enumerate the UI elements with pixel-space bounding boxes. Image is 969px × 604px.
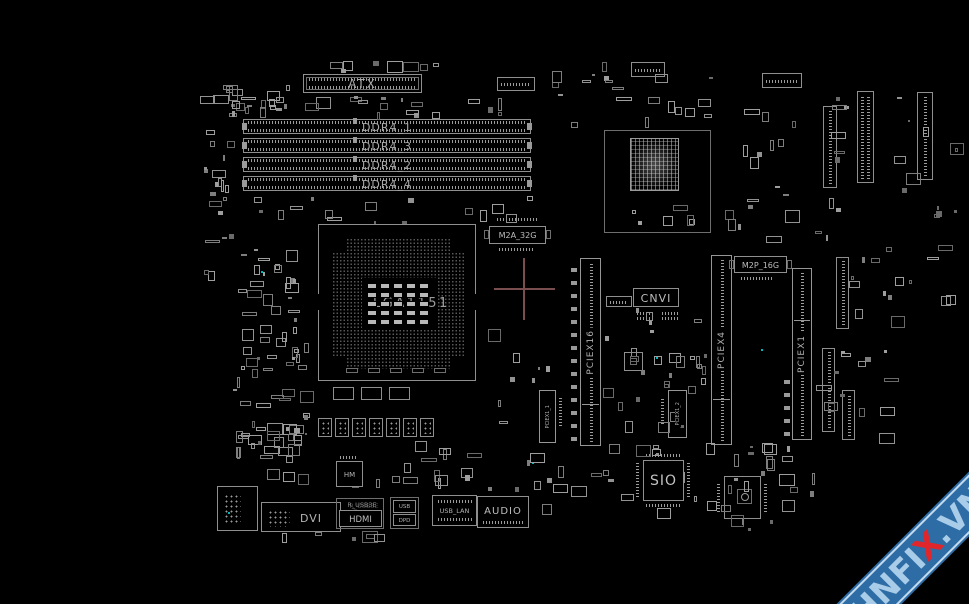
component-outline — [702, 366, 706, 375]
component-outline — [270, 105, 277, 109]
component-outline[interactable] — [369, 418, 383, 437]
component-outline — [204, 169, 208, 173]
component-outline — [387, 61, 403, 73]
component-outline — [725, 210, 734, 220]
component-outline — [232, 111, 235, 117]
pin-col — [829, 110, 832, 184]
dp-connector[interactable]: DPD — [393, 514, 416, 526]
testpoint[interactable] — [761, 349, 763, 351]
pin-row — [501, 83, 531, 86]
component-outline — [492, 204, 504, 213]
component-outline — [582, 80, 591, 83]
component-outline — [288, 434, 294, 441]
pch-chip[interactable] — [630, 138, 679, 191]
hdmi-connector[interactable]: HDMI — [339, 510, 382, 527]
component-outline — [283, 424, 297, 435]
component-outline — [653, 445, 659, 450]
pad-row — [499, 248, 535, 251]
pad-col — [559, 398, 562, 426]
component-outline — [654, 356, 663, 365]
pad — [390, 368, 402, 373]
component-outline — [787, 446, 790, 452]
component-outline — [783, 194, 789, 196]
component-outline — [226, 86, 229, 91]
component-outline — [283, 472, 296, 483]
component-outline[interactable] — [318, 418, 332, 437]
pciex1-label: PCIEX1 — [797, 333, 807, 375]
component-outline — [439, 448, 451, 455]
component-outline — [381, 97, 387, 99]
pad — [434, 368, 446, 373]
component-outline — [365, 202, 377, 212]
component-outline — [770, 140, 775, 151]
component-outline — [237, 447, 241, 459]
component-outline — [605, 80, 613, 83]
component-outline — [223, 197, 227, 201]
component-outline — [223, 155, 225, 161]
component-outline — [241, 97, 256, 100]
dvi-label: DVI — [282, 512, 340, 525]
pad-row — [741, 277, 773, 280]
component-outline — [250, 281, 264, 287]
component-outline — [764, 444, 776, 455]
component-outline — [766, 236, 782, 243]
component-outline — [236, 447, 241, 459]
component-outline — [552, 82, 559, 88]
component-outline — [707, 501, 718, 511]
component-outline — [498, 400, 501, 407]
pin-header[interactable] — [631, 62, 665, 77]
component-outline — [938, 245, 952, 251]
component-outline — [836, 208, 841, 212]
pin-grid-corner-cut — [332, 238, 345, 251]
component-outline — [238, 289, 248, 293]
cpu-center-pads — [367, 283, 429, 325]
testpoint[interactable] — [656, 357, 658, 359]
component-outline — [276, 97, 285, 103]
component-outline — [358, 100, 368, 105]
component-outline — [350, 97, 361, 102]
component-outline — [782, 456, 793, 462]
component-outline — [298, 365, 307, 370]
dimm-label: DDR4_4 — [244, 177, 530, 192]
qfn-chip[interactable] — [724, 476, 761, 519]
pin-row — [610, 301, 628, 304]
component-outline — [291, 278, 295, 284]
component-outline — [286, 250, 299, 262]
component-outline — [286, 427, 289, 431]
component-outline — [704, 114, 711, 119]
component-outline — [421, 458, 437, 463]
dimm-slot-ddr4-4[interactable]: DDR4_4 — [243, 176, 531, 191]
testpoint[interactable] — [228, 512, 230, 514]
pciex16-slot[interactable]: PCIEX16 — [580, 258, 601, 446]
usb-connector[interactable]: USB — [393, 500, 416, 513]
component-outline — [206, 130, 214, 135]
pin-header[interactable] — [497, 77, 535, 91]
component-outline — [292, 347, 298, 357]
component-outline — [226, 86, 233, 93]
component-outline — [895, 277, 904, 286]
component-outline — [218, 211, 223, 215]
component-outline — [571, 122, 577, 127]
component-outline — [790, 487, 798, 493]
component-outline — [669, 353, 681, 363]
pin-col — [861, 95, 864, 179]
component-outline[interactable] — [333, 387, 354, 400]
boardview-canvas[interactable]: ATX DDR4_1 DDR4_3 DDR4_2 DDR4_4 — [0, 0, 969, 604]
component-outline — [782, 500, 795, 512]
pad-cluster — [662, 317, 680, 320]
key-notch — [794, 320, 810, 321]
pin-header-vertical[interactable] — [823, 106, 837, 188]
cnvi-connector[interactable]: CNVI — [633, 288, 679, 307]
component-outline — [657, 508, 672, 519]
component-outline — [218, 178, 222, 187]
component-outline — [669, 373, 672, 378]
pciex1-slot[interactable]: PCIEX1 — [792, 268, 812, 440]
component-outline — [862, 257, 865, 263]
component-outline — [697, 364, 702, 369]
component-outline — [902, 188, 906, 193]
component-outline — [414, 113, 420, 118]
dimm-slot-ddr4-3[interactable]: DDR4_3 — [243, 138, 531, 153]
component-outline[interactable] — [335, 418, 349, 437]
component-outline — [208, 271, 215, 281]
dimm-label: DDR4_1 — [244, 120, 530, 135]
component-outline[interactable] — [420, 418, 434, 437]
component-outline — [403, 62, 419, 71]
component-outline — [685, 108, 695, 116]
component-outline — [488, 329, 501, 342]
pciex1-2-label: PCIEX1_2 — [675, 400, 681, 427]
audio-connector[interactable]: AUDIO — [477, 496, 529, 528]
component-outline — [750, 157, 760, 169]
component-outline — [254, 265, 261, 274]
component-outline — [762, 112, 769, 122]
component-outline — [955, 148, 958, 152]
component-outline — [362, 531, 377, 543]
dvi-connector[interactable]: DVI — [261, 502, 341, 532]
component-outline — [649, 320, 652, 325]
component-outline — [592, 74, 595, 76]
m2p-label: M2P_16G — [735, 261, 786, 270]
component-outline — [558, 94, 563, 96]
pin-header-vertical[interactable] — [842, 390, 855, 440]
component-outline — [293, 279, 296, 283]
atx-connector[interactable]: ATX — [303, 74, 422, 93]
component-outline — [343, 61, 353, 70]
component-outline — [294, 318, 298, 321]
pin-col — [924, 96, 927, 176]
component-outline — [256, 403, 271, 407]
component-outline — [274, 437, 285, 449]
watermark-text: HNFIX.VN — [844, 479, 969, 604]
component-outline — [616, 97, 632, 101]
component-outline — [664, 384, 670, 388]
component-outline — [406, 110, 419, 115]
component-outline — [269, 99, 275, 107]
component-outline — [311, 197, 314, 201]
component-outline — [286, 362, 294, 366]
hm-chip[interactable]: HM — [336, 461, 363, 487]
component-outline — [812, 473, 816, 485]
component-outline — [884, 350, 887, 353]
component-outline — [305, 433, 307, 435]
socket-side-notch — [471, 294, 476, 310]
component-outline — [743, 145, 748, 156]
pin-header-vertical[interactable] — [836, 257, 849, 329]
component-outline — [552, 71, 562, 82]
component-outline — [258, 258, 270, 262]
component-outline — [288, 444, 300, 456]
component-outline — [891, 316, 905, 328]
component-outline — [636, 397, 640, 402]
component-outline — [744, 109, 760, 115]
component-outline — [778, 139, 784, 146]
component-outline — [527, 460, 530, 466]
component-outline — [225, 185, 228, 193]
component-outline — [558, 466, 565, 477]
component-outline — [465, 208, 472, 216]
m2a-connector[interactable]: M2A_32G — [489, 226, 546, 244]
component-outline[interactable] — [352, 418, 366, 437]
component-outline — [762, 443, 774, 453]
component-outline — [275, 264, 280, 270]
m2a-tab — [546, 230, 551, 239]
component-outline — [510, 377, 516, 382]
component-outline — [844, 106, 849, 109]
component-outline — [954, 210, 957, 213]
component-outline — [294, 349, 300, 353]
component-outline — [728, 219, 736, 232]
crosshair-cursor-v — [523, 258, 525, 320]
qfn-marking — [741, 493, 749, 501]
component-outline — [284, 104, 287, 109]
component-outline — [260, 325, 272, 334]
component-outline — [757, 152, 763, 157]
component-outline — [237, 377, 240, 388]
component-outline — [279, 398, 291, 402]
pciex4-slot[interactable]: PCIEX4 — [711, 255, 732, 445]
cpu-socket[interactable]: LGA1151 — [318, 224, 476, 381]
component-outline — [461, 468, 473, 479]
component-outline — [542, 504, 552, 515]
component-outline — [286, 85, 290, 91]
component-outline — [650, 330, 654, 333]
component-outline[interactable] — [386, 418, 400, 437]
component-outline — [603, 470, 608, 476]
pciex1-1-header[interactable]: PCIEX1_1 — [539, 390, 556, 443]
socket-side-notch — [318, 294, 323, 310]
component-outline — [286, 277, 292, 289]
component-outline — [292, 357, 295, 360]
component-outline — [775, 186, 780, 188]
component-outline — [408, 198, 414, 203]
component-outline — [271, 306, 281, 315]
component-outline — [696, 356, 700, 368]
component-outline — [373, 61, 378, 66]
component-outline — [883, 291, 886, 296]
component-outline — [886, 247, 892, 252]
pin-field — [224, 494, 241, 524]
pin-header-vertical[interactable] — [917, 92, 933, 180]
cnvi-label: CNVI — [634, 292, 678, 305]
usb-lan-connector[interactable]: USB_LAN — [432, 495, 477, 526]
pin-grid-corner-cut — [332, 356, 345, 369]
component-outline — [937, 206, 939, 211]
component-outline — [770, 520, 773, 524]
component-outline — [748, 528, 751, 530]
pin-header-vertical[interactable] — [857, 91, 874, 183]
component-outline — [602, 62, 607, 71]
component-outline — [871, 258, 880, 263]
component-outline — [489, 108, 493, 113]
component-outline[interactable] — [403, 418, 417, 437]
component-outline — [888, 295, 892, 300]
atx-label: ATX — [304, 77, 421, 91]
component-outline — [546, 366, 550, 372]
component-outline[interactable] — [606, 296, 632, 307]
component-outline — [766, 456, 772, 469]
key-notch — [713, 399, 730, 400]
component-outline — [676, 356, 685, 367]
component-outline[interactable] — [361, 387, 382, 400]
component-outline — [241, 254, 246, 256]
component-outline — [591, 473, 602, 477]
component-outline — [232, 89, 243, 96]
testpoint[interactable] — [532, 462, 534, 464]
qfn-chip[interactable] — [624, 352, 643, 371]
pin-row — [438, 500, 473, 503]
m2p-connector[interactable]: M2P_16G — [734, 256, 787, 273]
r-usb3e-label: R_USB3E — [340, 501, 384, 509]
pciex1-2-header[interactable]: PCIEX1_2 — [668, 390, 687, 438]
component-outline — [327, 217, 341, 221]
component-outline — [785, 210, 800, 223]
component-outline — [264, 446, 279, 454]
pin-header-vertical[interactable] — [822, 348, 835, 432]
dpd-label: DPD — [394, 518, 415, 524]
component-outline — [403, 477, 418, 485]
component-outline — [694, 319, 702, 323]
component-outline — [267, 431, 280, 441]
component-outline — [609, 444, 620, 454]
component-outline — [432, 112, 440, 119]
component-outline — [467, 453, 482, 458]
testpoint[interactable] — [261, 271, 263, 273]
sio-chip[interactable]: SIO — [643, 460, 684, 501]
component-outline — [233, 389, 238, 391]
component-outline — [608, 479, 614, 483]
component-outline — [748, 205, 753, 209]
component-outline — [849, 281, 860, 289]
component-outline — [303, 413, 309, 418]
component-outline — [855, 309, 863, 319]
component-outline — [260, 337, 270, 343]
component-outline[interactable] — [389, 387, 410, 400]
component-outline — [215, 182, 218, 186]
pad-cluster — [662, 312, 680, 315]
component-outline — [241, 433, 251, 437]
pad-col — [687, 463, 690, 497]
component-outline — [200, 96, 215, 104]
component-outline — [675, 107, 683, 115]
component-outline — [420, 64, 428, 71]
component-outline — [936, 211, 942, 217]
component-outline — [465, 475, 470, 481]
component-outline — [286, 456, 293, 463]
dimm-slot-ddr4-1[interactable]: DDR4_1 — [243, 119, 531, 134]
component-outline — [254, 197, 262, 204]
pin-grid-corner-cut — [451, 238, 464, 251]
pad-col — [661, 398, 664, 424]
component-outline — [294, 428, 300, 432]
pin-header[interactable] — [762, 73, 802, 88]
component-outline — [285, 283, 300, 293]
component-outline — [278, 210, 283, 220]
component-outline — [645, 117, 649, 128]
ps2-usb-stack[interactable] — [217, 486, 258, 531]
component-outline — [305, 103, 319, 110]
component-outline — [879, 433, 895, 443]
component-outline — [547, 478, 552, 482]
component-outline — [263, 294, 273, 305]
component-outline — [434, 470, 440, 482]
key-notch — [582, 404, 599, 405]
component-outline — [304, 415, 308, 421]
component-outline — [738, 224, 741, 230]
pciex16-label: PCIEX16 — [586, 328, 596, 377]
component-outline — [260, 107, 267, 118]
component-outline — [779, 474, 794, 486]
component-outline — [247, 290, 262, 299]
component-outline — [213, 95, 229, 104]
component-outline — [571, 486, 587, 497]
component-outline — [515, 487, 519, 492]
component-outline — [229, 234, 234, 239]
component-outline — [859, 408, 865, 417]
component-outline — [438, 478, 441, 489]
component-outline — [750, 446, 752, 448]
pad — [412, 368, 424, 373]
component-outline — [229, 113, 236, 117]
component-outline — [858, 361, 865, 368]
component-outline — [908, 120, 910, 122]
component-outline — [880, 407, 894, 416]
pad-grid — [372, 421, 380, 434]
component-outline — [290, 206, 303, 210]
dimm-slot-ddr4-2[interactable]: DDR4_2 — [243, 157, 531, 172]
component-outline — [435, 475, 448, 486]
component-outline — [553, 484, 569, 492]
component-outline — [325, 210, 333, 220]
component-outline — [232, 101, 239, 109]
component-outline — [289, 425, 303, 434]
dimm-label: DDR4_3 — [244, 139, 530, 154]
pin-row — [635, 69, 661, 72]
component-outline — [641, 370, 645, 375]
component-outline — [212, 170, 226, 178]
pad-grid — [389, 421, 397, 434]
component-outline — [288, 310, 300, 313]
component-outline — [909, 280, 912, 284]
component-outline — [841, 351, 845, 354]
component-outline — [468, 99, 480, 104]
component-outline — [276, 108, 282, 111]
component-outline — [488, 107, 493, 113]
component-outline — [792, 121, 796, 129]
